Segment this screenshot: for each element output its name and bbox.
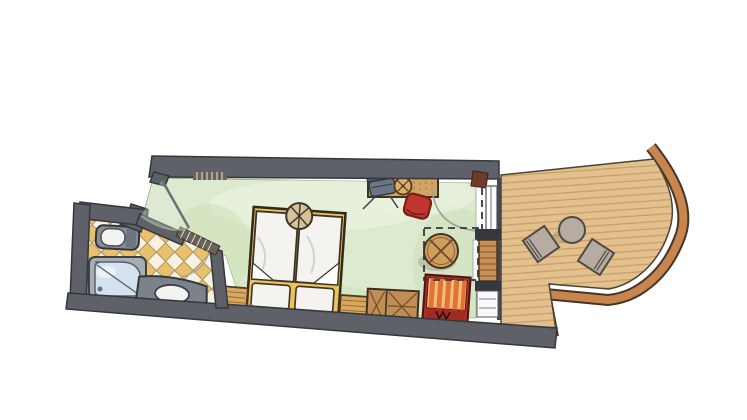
shower-drain: [98, 287, 103, 292]
balcony-door-glazing: [486, 186, 497, 230]
double-bed: [242, 200, 351, 322]
floor-plan-drawing: [0, 0, 747, 420]
balcony-table: [559, 217, 585, 243]
floor-plan-canvas: [0, 0, 747, 420]
window-sill-box: [479, 240, 497, 281]
left-outer-wall: [70, 203, 90, 302]
lower-window: [477, 291, 498, 317]
bed-foot-left: [251, 283, 291, 310]
desk-lamp: [395, 178, 412, 195]
striped-bench: [422, 275, 470, 324]
radiator: [193, 172, 227, 180]
bed-foot-right: [295, 286, 335, 313]
